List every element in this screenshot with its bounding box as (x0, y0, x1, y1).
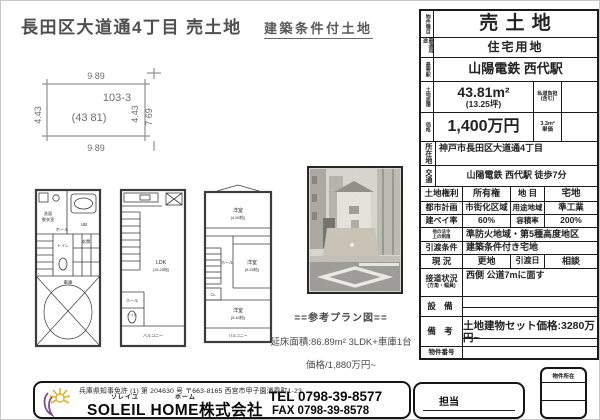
unit-price-label-2: 単価 (542, 127, 553, 133)
spec-row-remarks: 備 考 土地建物セット価格:3280万円~ (421, 317, 597, 347)
laws-value: 準防火地域・第5種高度地区 (463, 228, 597, 241)
handover-condition-value: 建築条件付き宅地 (463, 242, 597, 254)
plan2-ldk-label: LDK (156, 260, 167, 266)
spec-row-coverage: 建ペイ率 60% 容積率 200% (421, 215, 597, 228)
price-label: 価格 (421, 113, 434, 141)
spec-row-station: 最寄駅 山陽電鉄 西代駅 (421, 58, 597, 82)
lot-dim-top: 9 89 (87, 71, 105, 81)
plan3-balcony-label: バルコニー (229, 333, 248, 338)
property-photo (307, 166, 403, 294)
laws-label-2: 上の制限 (433, 235, 451, 240)
coverage-label: 建ペイ率 (421, 215, 463, 227)
type-value: 売 土 地 (434, 11, 597, 37)
road-frontage-sublabel: (方角・幅員) (427, 284, 455, 290)
company-logo-icon (38, 385, 82, 419)
plan3-room1-label: 洋室 (233, 207, 243, 214)
plan3-room1-size: (4.50帖) (231, 214, 246, 220)
plan1-bath-label: UB (81, 222, 87, 227)
property-number-label: 物件番号 (421, 347, 463, 358)
plan3-room3-size: (5.40帖) (231, 314, 246, 320)
spec-row-handover-condition: 引渡条件 建築条件付き宅地 (421, 242, 597, 255)
land-category-value: 宅地 (545, 187, 597, 201)
plan-note-heading: ==参考プラン図== (251, 309, 431, 324)
spec-row-current-state: 現 況 更地 引渡日 相談 (421, 255, 597, 269)
zoning-value: 準工業 (545, 202, 597, 214)
address-value: 神戸市長田区大道通4丁目 (436, 142, 597, 165)
plan3-room2-size: (5.25帖) (245, 266, 260, 272)
remarks-value: 土地建物セット価格:3280万円~ (463, 317, 597, 346)
current-state-label: 現 況 (421, 255, 463, 268)
type-label: 物件種目 (421, 11, 434, 37)
facilities-label: 設 備 (421, 297, 463, 316)
staff-signature-line (423, 410, 515, 411)
lot-area: (43 81) (72, 112, 107, 124)
plan3-room3-label: 洋室 (233, 307, 243, 314)
reference-plan-note: ==参考プラン図== 延床面積:86.89m² 3LDK+車庫1台 価格/1,8… (251, 309, 431, 371)
company-name: SOLEIL HOME株式会社 (87, 398, 263, 420)
lot-parcel-number: 103-3 (103, 92, 131, 104)
unit-price-value (562, 113, 597, 141)
private-road-value (562, 82, 597, 112)
area-tsubo: (13.25坪) (466, 100, 501, 109)
road-frontage-value: 西側 公道7mに面す (463, 269, 597, 296)
lot-survey-diagram: 9 89 4.43 103-3 (43 81) 4.43 7 69 9 89 (29, 59, 189, 164)
plan3-room2-label: 洋室 (247, 259, 257, 266)
spec-table: 物件種目 売 土 地 最適用途 住宅用地 最寄駅 山陽電鉄 西代駅 土地面積 4… (419, 9, 599, 360)
plan-floor-area: 延床面積:86.89m² 3LDK+車庫1台 (251, 334, 431, 348)
use-value: 住宅用地 (434, 38, 597, 57)
floor-plan-2f: LDK (15.25帖) ホール トイレ バルコニー (114, 184, 192, 352)
floor-ratio-label: 容積率 (511, 215, 545, 227)
spec-row-facilities: 設 備 (421, 297, 597, 317)
access-value: 山陽電鉄 西代駅 徒歩7分 (436, 166, 597, 186)
land-sale-flyer: 長田区大道通4丁目 売土地 建築条件付土地 9 89 4.43 103-3 (4… (0, 0, 600, 420)
area-value: 43.81m² (457, 85, 509, 100)
price-value: 1,400万円 (434, 113, 534, 141)
plan1-entrance-label: 玄関 (82, 238, 90, 245)
remarks-label: 備 考 (421, 317, 463, 346)
handover-condition-label: 引渡条件 (421, 242, 463, 254)
plan2-ldk-size: (15.25帖) (153, 266, 170, 272)
lot-dim-right: 4.43 (130, 105, 140, 123)
cityplan-value: 市街化区域 (463, 202, 511, 214)
spec-row-laws: 他の法令 上の制限 準防火地域・第5種高度地区 (421, 228, 597, 242)
facilities-value (463, 297, 597, 316)
area-label: 土地面積 (421, 82, 434, 112)
property-location-label: 物件所在 (542, 369, 585, 383)
floor-ratio-value: 200% (545, 215, 597, 227)
private-road-label-2: (含む) (541, 97, 554, 103)
plan1-washroom-label-2: 脱衣室 (42, 216, 55, 223)
plan2-balcony-label: バルコニー (143, 333, 163, 338)
plan2-toilet-label: トイレ (127, 313, 138, 317)
staff-box: 担当 (413, 382, 525, 419)
spec-row-address: 所在地 神戸市長田区大道通4丁目 (421, 142, 597, 166)
floor-plan-1f: 洗面 脱衣室 UB ホール トイレ 玄関 車庫 (29, 184, 107, 352)
spec-row-rights: 土地権利 所有権 地 目 宅地 (421, 187, 597, 202)
use-label: 最適用途 (421, 38, 434, 57)
fax-number: FAX 0798-39-8578 (272, 405, 369, 417)
company-info-box: 兵庫県知事免許 (1) 第 204630 号 〒663-8165 西宮市甲子園浦… (33, 381, 411, 419)
current-state-value: 更地 (463, 255, 511, 268)
access-label: 交通 (421, 166, 436, 186)
lot-dim-left: 4.43 (33, 106, 43, 124)
plan1-washroom-label-1: 洗面 (44, 210, 52, 217)
staff-label: 担当 (439, 393, 459, 408)
lot-dim-right-total: 7 69 (144, 108, 154, 126)
property-number-value (463, 347, 597, 358)
handover-date-label: 引渡日 (511, 255, 545, 268)
property-location-row (542, 383, 585, 401)
spec-row-type: 物件種目 売 土 地 (421, 11, 597, 38)
lot-dim-bottom: 9 89 (87, 143, 105, 153)
phone-number: TEL 0798-39-8577 (269, 389, 382, 404)
plan2-hall-label: ホール (126, 298, 138, 303)
cityplan-label: 都市計画 (421, 202, 463, 214)
spec-row-property-number: 物件番号 (421, 347, 597, 358)
land-category-label: 地 目 (511, 187, 545, 201)
handover-date-value: 相談 (545, 255, 597, 268)
page-title: 長田区大道通4丁目 売土地 (21, 13, 242, 38)
plan1-toilet-label: トイレ (57, 243, 69, 248)
rights-label: 土地権利 (421, 187, 463, 201)
spec-row-area: 土地面積 43.81m² (13.25坪) 私道負担 (含む) (421, 82, 597, 113)
plan3-hall-label: ホール (221, 260, 233, 265)
plan3-closet-label: CL (210, 292, 216, 297)
spec-row-cityplan: 都市計画 市街化区域 用途地域 準工業 (421, 202, 597, 215)
station-value: 山陽電鉄 西代駅 (434, 58, 597, 81)
zoning-label: 用途地域 (511, 202, 545, 214)
spec-row-use: 最適用途 住宅用地 (421, 38, 597, 58)
station-label: 最寄駅 (421, 58, 434, 81)
spec-row-access: 交通 山陽電鉄 西代駅 徒歩7分 (421, 166, 597, 187)
plan-price: 価格/1,880万円~ (251, 357, 431, 371)
plan1-hall-label: ホール (56, 227, 69, 232)
address-label: 所在地 (421, 142, 436, 165)
coverage-value: 60% (463, 215, 511, 227)
building-condition-note: 建築条件付土地 (264, 18, 373, 39)
rights-value: 所有権 (463, 187, 511, 201)
spec-row-road-frontage: 接道状況 (方角・幅員) 西側 公道7mに面す (421, 269, 597, 297)
property-location-box: 物件所在 (540, 367, 587, 419)
spec-row-price: 価格 1,400万円 3.3m² 単価 (421, 113, 597, 142)
plan1-garage-label: 車庫 (64, 279, 73, 286)
